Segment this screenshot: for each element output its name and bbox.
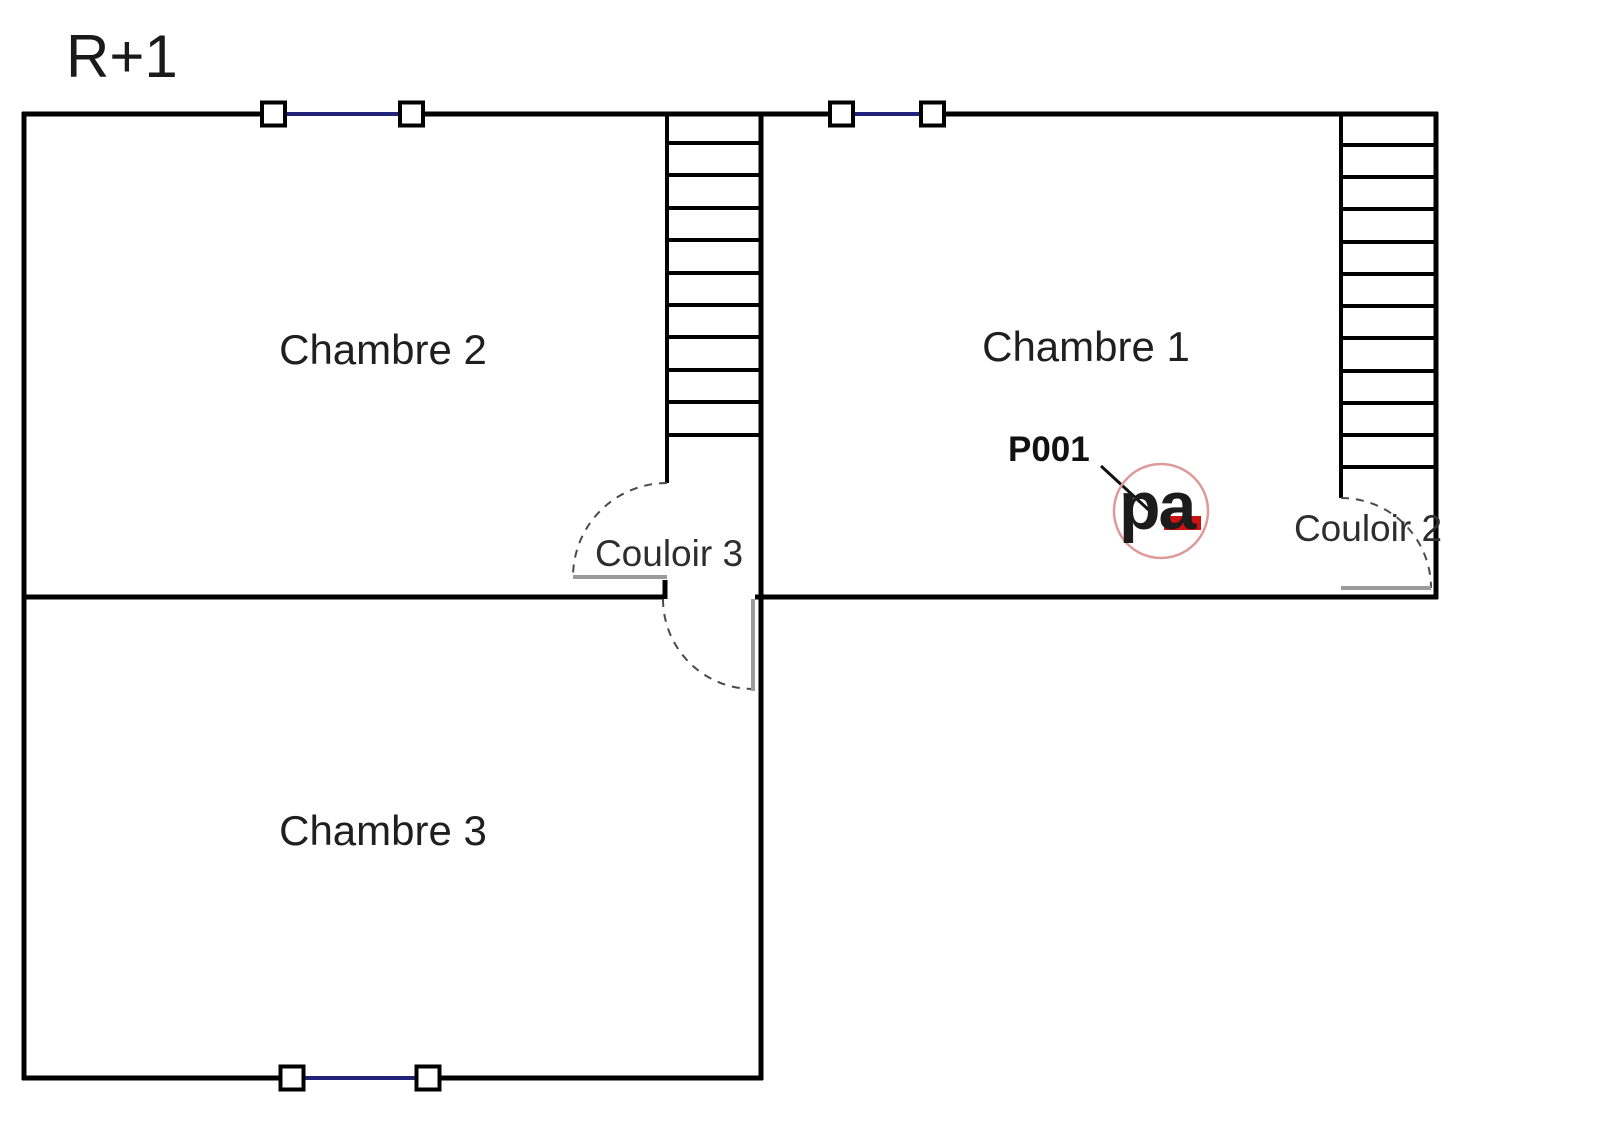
stair-treads <box>667 143 761 435</box>
floor-plan-svg: R+1 <box>0 0 1600 1126</box>
window-chambre1 <box>830 103 944 126</box>
corridor-label-couloir2: Couloir 2 <box>1294 508 1442 549</box>
floor-title: R+1 <box>66 23 178 90</box>
door-chambre3 <box>663 599 753 691</box>
window-chambre3 <box>281 1067 440 1090</box>
window-frame-square <box>281 1067 304 1090</box>
staircase-right <box>1341 112 1436 498</box>
window-frame-square <box>921 103 944 126</box>
door-tag-p001: P001 <box>1008 430 1090 469</box>
window-frame-square <box>830 103 853 126</box>
stair-treads <box>1341 145 1436 467</box>
corridor-label-couloir3: Couloir 3 <box>595 533 743 574</box>
window-frame-square <box>262 103 285 126</box>
window-chambre2 <box>262 103 423 126</box>
window-frame-square <box>400 103 423 126</box>
pa-logo: pa <box>1114 464 1208 558</box>
staircase-left <box>667 112 761 483</box>
room-label-chambre3: Chambre 3 <box>279 807 487 854</box>
door-swing-arc <box>663 599 753 689</box>
room-label-chambre1: Chambre 1 <box>982 323 1190 370</box>
room-label-chambre2: Chambre 2 <box>279 326 487 373</box>
window-frame-square <box>417 1067 440 1090</box>
walls <box>22 112 1438 1080</box>
pa-logo-text: pa <box>1119 468 1198 544</box>
